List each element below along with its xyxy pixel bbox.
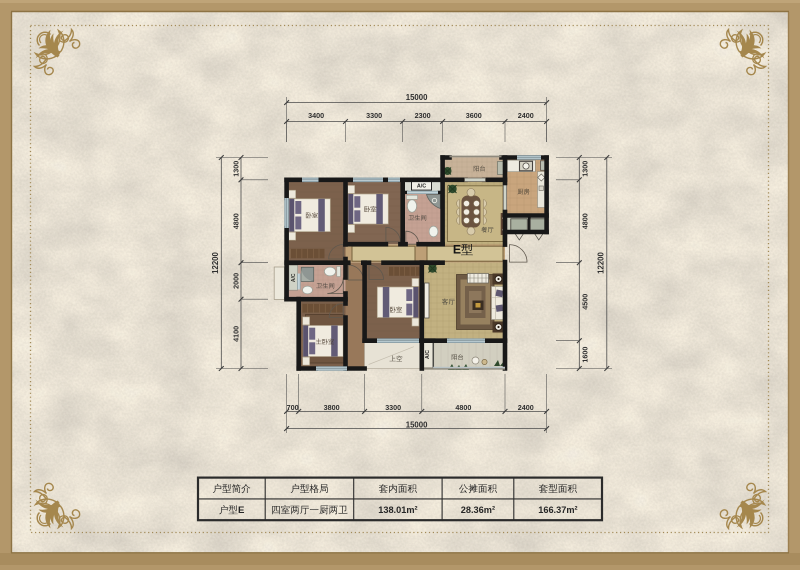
svg-text:3800: 3800	[324, 403, 340, 412]
svg-text:28.36m²: 28.36m²	[461, 505, 495, 515]
svg-text:700: 700	[287, 403, 299, 412]
svg-text:15000: 15000	[406, 420, 428, 429]
svg-text:A/C: A/C	[425, 350, 431, 359]
svg-text:3600: 3600	[466, 111, 482, 120]
svg-text:2400: 2400	[518, 111, 534, 120]
svg-text:2000: 2000	[231, 273, 240, 289]
svg-text:4800: 4800	[231, 213, 240, 229]
svg-text:3300: 3300	[385, 403, 401, 412]
svg-text:4800: 4800	[455, 403, 471, 412]
svg-text:1300: 1300	[231, 161, 240, 177]
svg-text:12200: 12200	[597, 251, 606, 273]
svg-text:15000: 15000	[406, 93, 428, 102]
svg-text:1300: 1300	[581, 161, 590, 177]
svg-text:2400: 2400	[518, 403, 534, 412]
svg-text:E: E	[453, 243, 461, 257]
svg-text:A/C: A/C	[417, 184, 426, 190]
svg-text:166.37m²: 166.37m²	[538, 505, 577, 515]
svg-text:4100: 4100	[231, 326, 240, 342]
svg-text:A/C: A/C	[291, 273, 297, 282]
svg-text:2300: 2300	[415, 111, 431, 120]
svg-text:E: E	[238, 505, 245, 516]
svg-text:138.01m²: 138.01m²	[378, 505, 417, 515]
svg-text:4800: 4800	[581, 213, 590, 229]
svg-text:3400: 3400	[308, 111, 324, 120]
svg-text:1600: 1600	[581, 347, 590, 363]
svg-text:12200: 12200	[211, 251, 220, 273]
svg-text:3300: 3300	[366, 111, 382, 120]
svg-text:4500: 4500	[581, 294, 590, 310]
